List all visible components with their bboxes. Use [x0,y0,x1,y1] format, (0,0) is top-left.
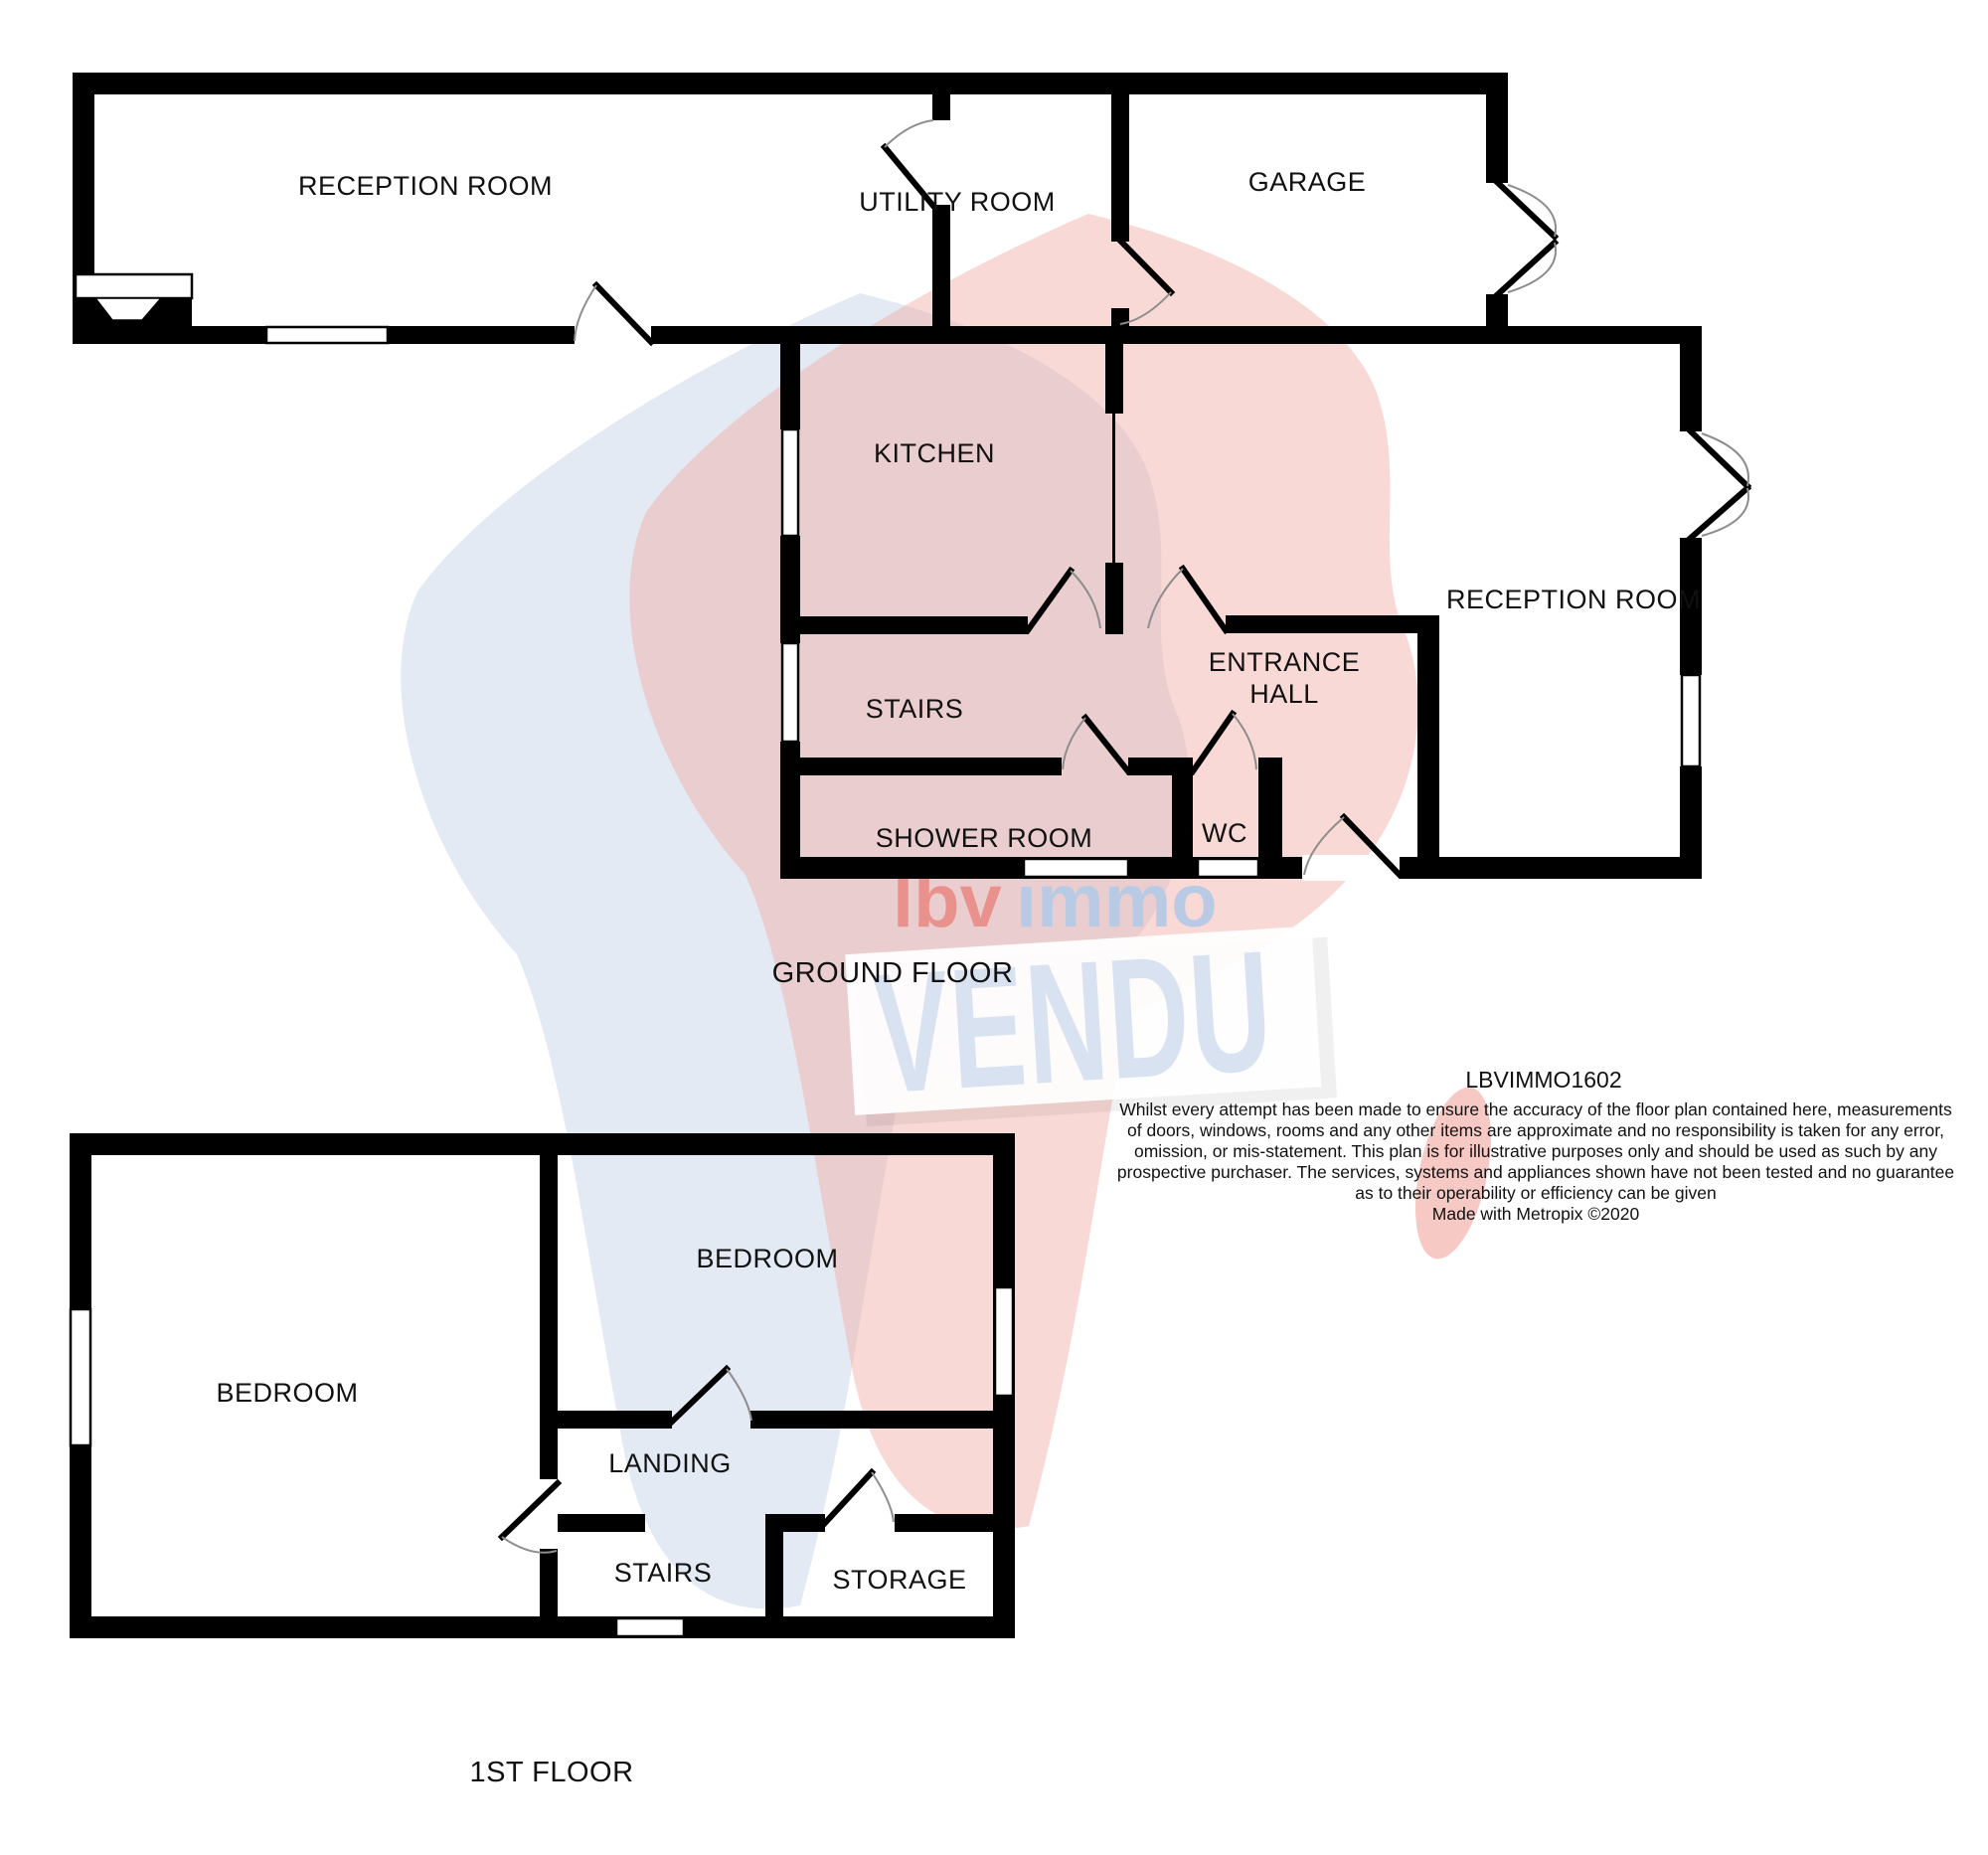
kitchen-divider-stub [1105,344,1123,414]
watermark-france-map: VENDU lbv immo [401,214,1504,1608]
disclaimer-line-5: as to their operability or efficiency ca… [1355,1183,1717,1203]
floorplan-page: VENDU lbv immo [0,0,1988,1855]
room-label-garage: GARAGE [1248,167,1367,197]
wall [780,758,1062,775]
wall [750,1411,1015,1429]
wall [800,616,1028,634]
room-label-stairs-gf: STAIRS [866,694,964,724]
room-label-entrance-hall: ENTRANCE [1209,647,1361,677]
vendu-sign-text: VENDU [869,915,1277,1129]
wall [558,1514,645,1532]
wall [70,1133,91,1312]
ground-floor-title: GROUND FLOOR [772,957,1014,989]
kitchen-divider-post [1105,563,1123,634]
disclaimer-line-3: omission, or mis-statement. This plan is… [1134,1141,1937,1161]
reference-code: LBVIMMO1602 [1465,1067,1621,1093]
wall [1486,294,1508,326]
wall [780,344,800,429]
wall [780,536,800,643]
wall [70,1443,91,1638]
room-label-utility: UTILITY ROOM [859,187,1056,217]
window [1682,675,1700,766]
room-label-landing: LANDING [608,1448,732,1478]
window [782,429,798,536]
wall [540,1549,558,1638]
wall [1680,344,1702,431]
credit-line: Made with Metropix ©2020 [1432,1204,1640,1224]
wall [1111,94,1129,242]
window [995,1287,1013,1396]
open-plan-divider-line [1112,414,1115,563]
window [1198,859,1258,877]
room-label-reception-left: RECEPTION ROOM [298,171,553,201]
wall [895,1514,1015,1532]
wall [1680,766,1702,861]
wall [765,1514,783,1638]
room-label-stairs-1f: STAIRS [614,1558,713,1588]
wall [932,94,950,120]
first-floor-title: 1ST FLOOR [469,1757,633,1788]
wall [70,1133,1015,1155]
disclaimer-line-1: Whilst every attempt has been made to en… [1119,1099,1952,1119]
room-label-storage: STORAGE [832,1565,966,1595]
window [1024,859,1128,877]
wall [1486,94,1508,183]
fireplace-mantel [76,274,192,298]
room-label-shower-room: SHOWER ROOM [876,823,1093,853]
room-label-entrance-hall2: HALL [1249,679,1319,709]
disclaimer-line-2: of doors, windows, rooms and any other i… [1127,1120,1944,1140]
window [782,643,798,742]
door-swing-arc [872,1472,894,1522]
room-label-bedroom-right: BEDROOM [696,1244,838,1273]
french-door-leaf [1498,183,1555,237]
wall [558,1411,672,1429]
wall [540,1155,558,1479]
window [71,1309,90,1445]
door-leaf [502,1483,558,1537]
window [266,327,388,343]
room-label-kitchen: KITCHEN [874,438,995,468]
wall [1417,615,1439,857]
door-leaf [825,1472,872,1523]
wall [783,1514,825,1532]
french-door-leaf [1498,243,1555,294]
wall [73,73,1508,94]
room-label-wc: WC [1202,818,1247,848]
disclaimer-line-4: prospective purchaser. The services, sys… [1117,1162,1954,1182]
window [616,1618,684,1636]
floorplan-canvas: VENDU lbv immo [0,0,1988,1855]
room-label-reception-right: RECEPTION ROOM [1446,585,1701,614]
room-label-bedroom-left: BEDROOM [216,1378,358,1408]
wall [1226,615,1436,633]
door-swing-arc [885,120,933,147]
wall [932,205,950,326]
